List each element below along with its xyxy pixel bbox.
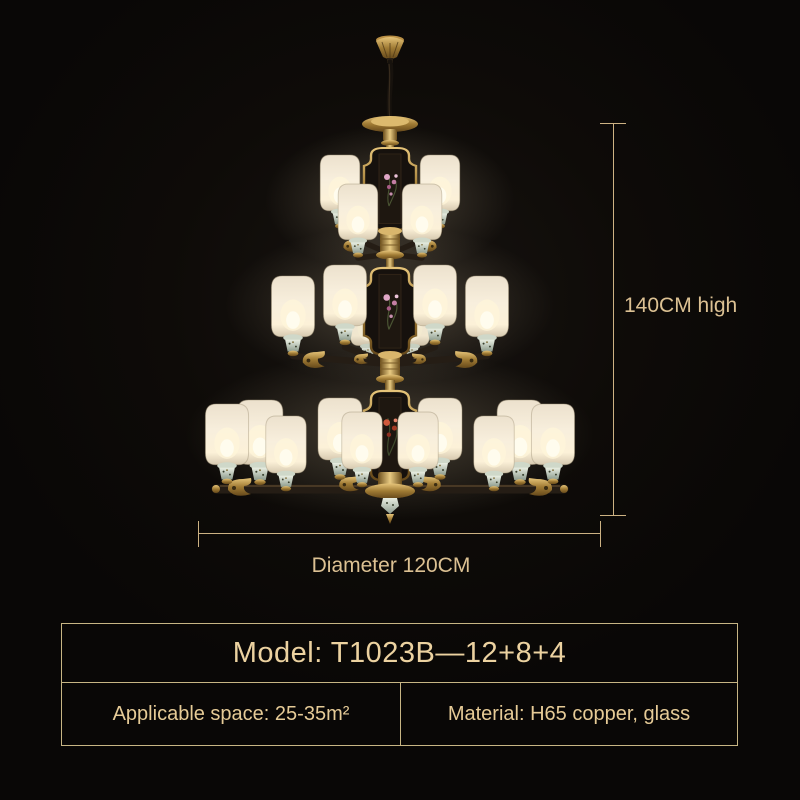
diameter-label: Diameter 120CM	[291, 554, 491, 578]
model-row: Model: T1023B—12+8+4	[62, 624, 737, 683]
spec-detail-row: Applicable space: 25-35m² Material: H65 …	[62, 683, 737, 745]
spec-cell-material: Material: H65 copper, glass	[401, 683, 737, 745]
height-dimension-bottom-tick	[600, 515, 626, 516]
spec-table: Model: T1023B—12+8+4 Applicable space: 2…	[61, 623, 738, 746]
product-showcase: 140CM high Diameter 120CM Model: T1023B—…	[0, 0, 800, 800]
diameter-dimension-left-tick	[198, 521, 199, 547]
tier-bottom	[205, 391, 574, 524]
height-dimension-line	[613, 123, 614, 516]
height-label: 140CM high	[624, 294, 737, 318]
height-dimension-top-tick	[600, 123, 626, 124]
diameter-dimension-line	[198, 533, 601, 534]
spec-cell-applicable-space: Applicable space: 25-35m²	[62, 683, 401, 745]
suspension-cable	[389, 62, 391, 120]
diameter-dimension-right-tick	[600, 521, 601, 547]
canopy	[376, 36, 404, 64]
